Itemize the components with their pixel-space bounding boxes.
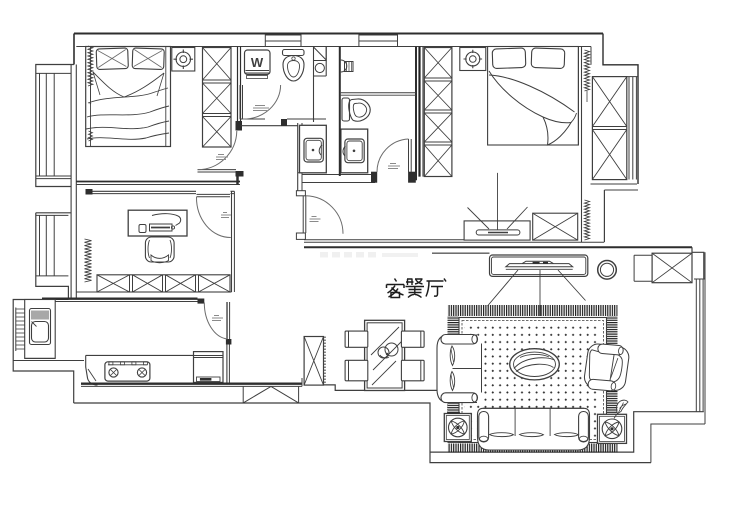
svg-text:W: W [251,55,264,70]
